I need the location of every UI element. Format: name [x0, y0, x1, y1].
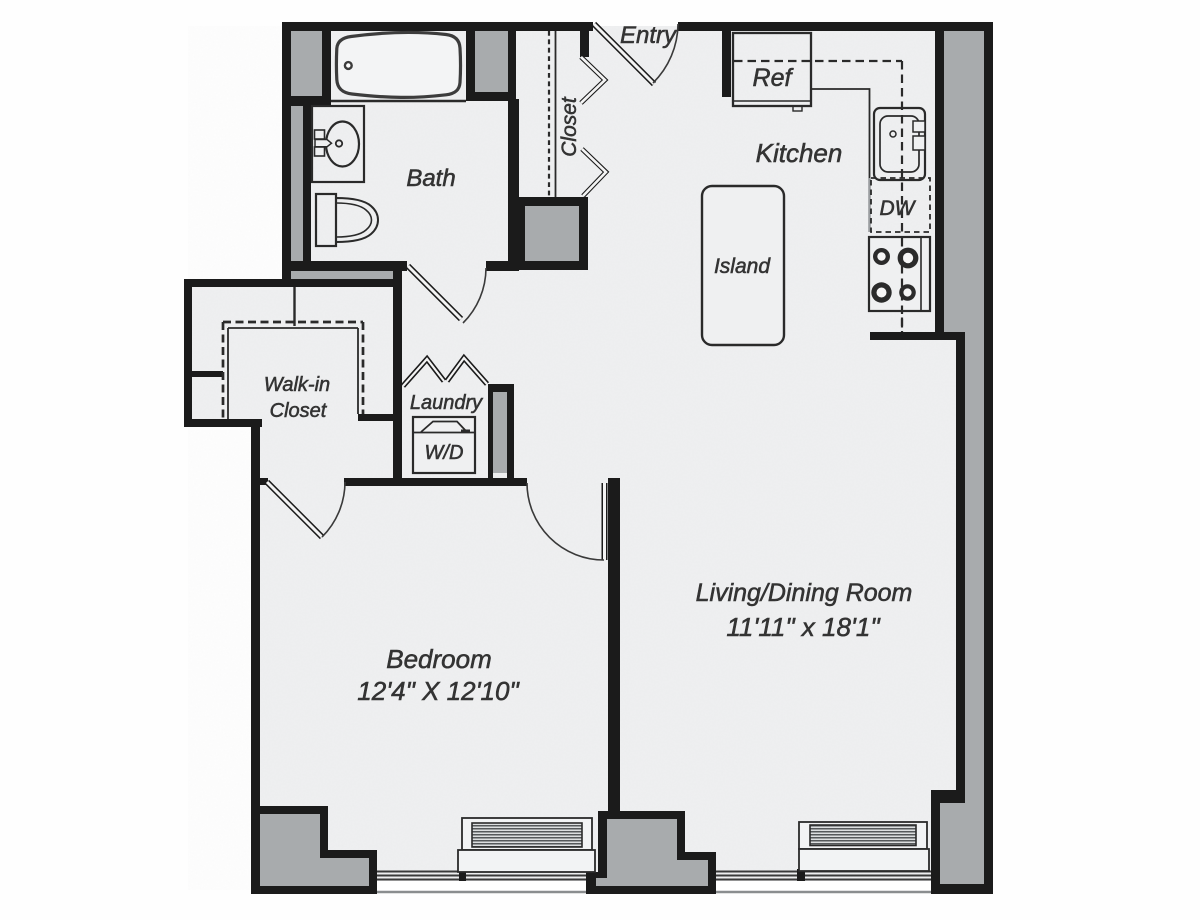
svg-text:W/D: W/D — [425, 442, 464, 464]
svg-text:Living/Dining Room: Living/Dining Room — [696, 579, 913, 607]
svg-text:Bedroom: Bedroom — [386, 644, 492, 674]
svg-text:Closet: Closet — [270, 400, 328, 422]
svg-text:Island: Island — [714, 255, 771, 278]
svg-text:Laundry: Laundry — [410, 392, 483, 414]
svg-text:12'4" X 12'10": 12'4" X 12'10" — [357, 676, 520, 706]
svg-text:DW: DW — [880, 197, 917, 220]
svg-text:Bath: Bath — [406, 165, 455, 192]
svg-text:Ref: Ref — [753, 64, 795, 92]
svg-text:11'11" x 18'1": 11'11" x 18'1" — [726, 612, 881, 642]
svg-text:Entry: Entry — [620, 22, 678, 49]
svg-text:Closet: Closet — [558, 96, 581, 157]
svg-text:Kitchen: Kitchen — [756, 138, 843, 168]
svg-text:Walk-in: Walk-in — [264, 374, 330, 396]
